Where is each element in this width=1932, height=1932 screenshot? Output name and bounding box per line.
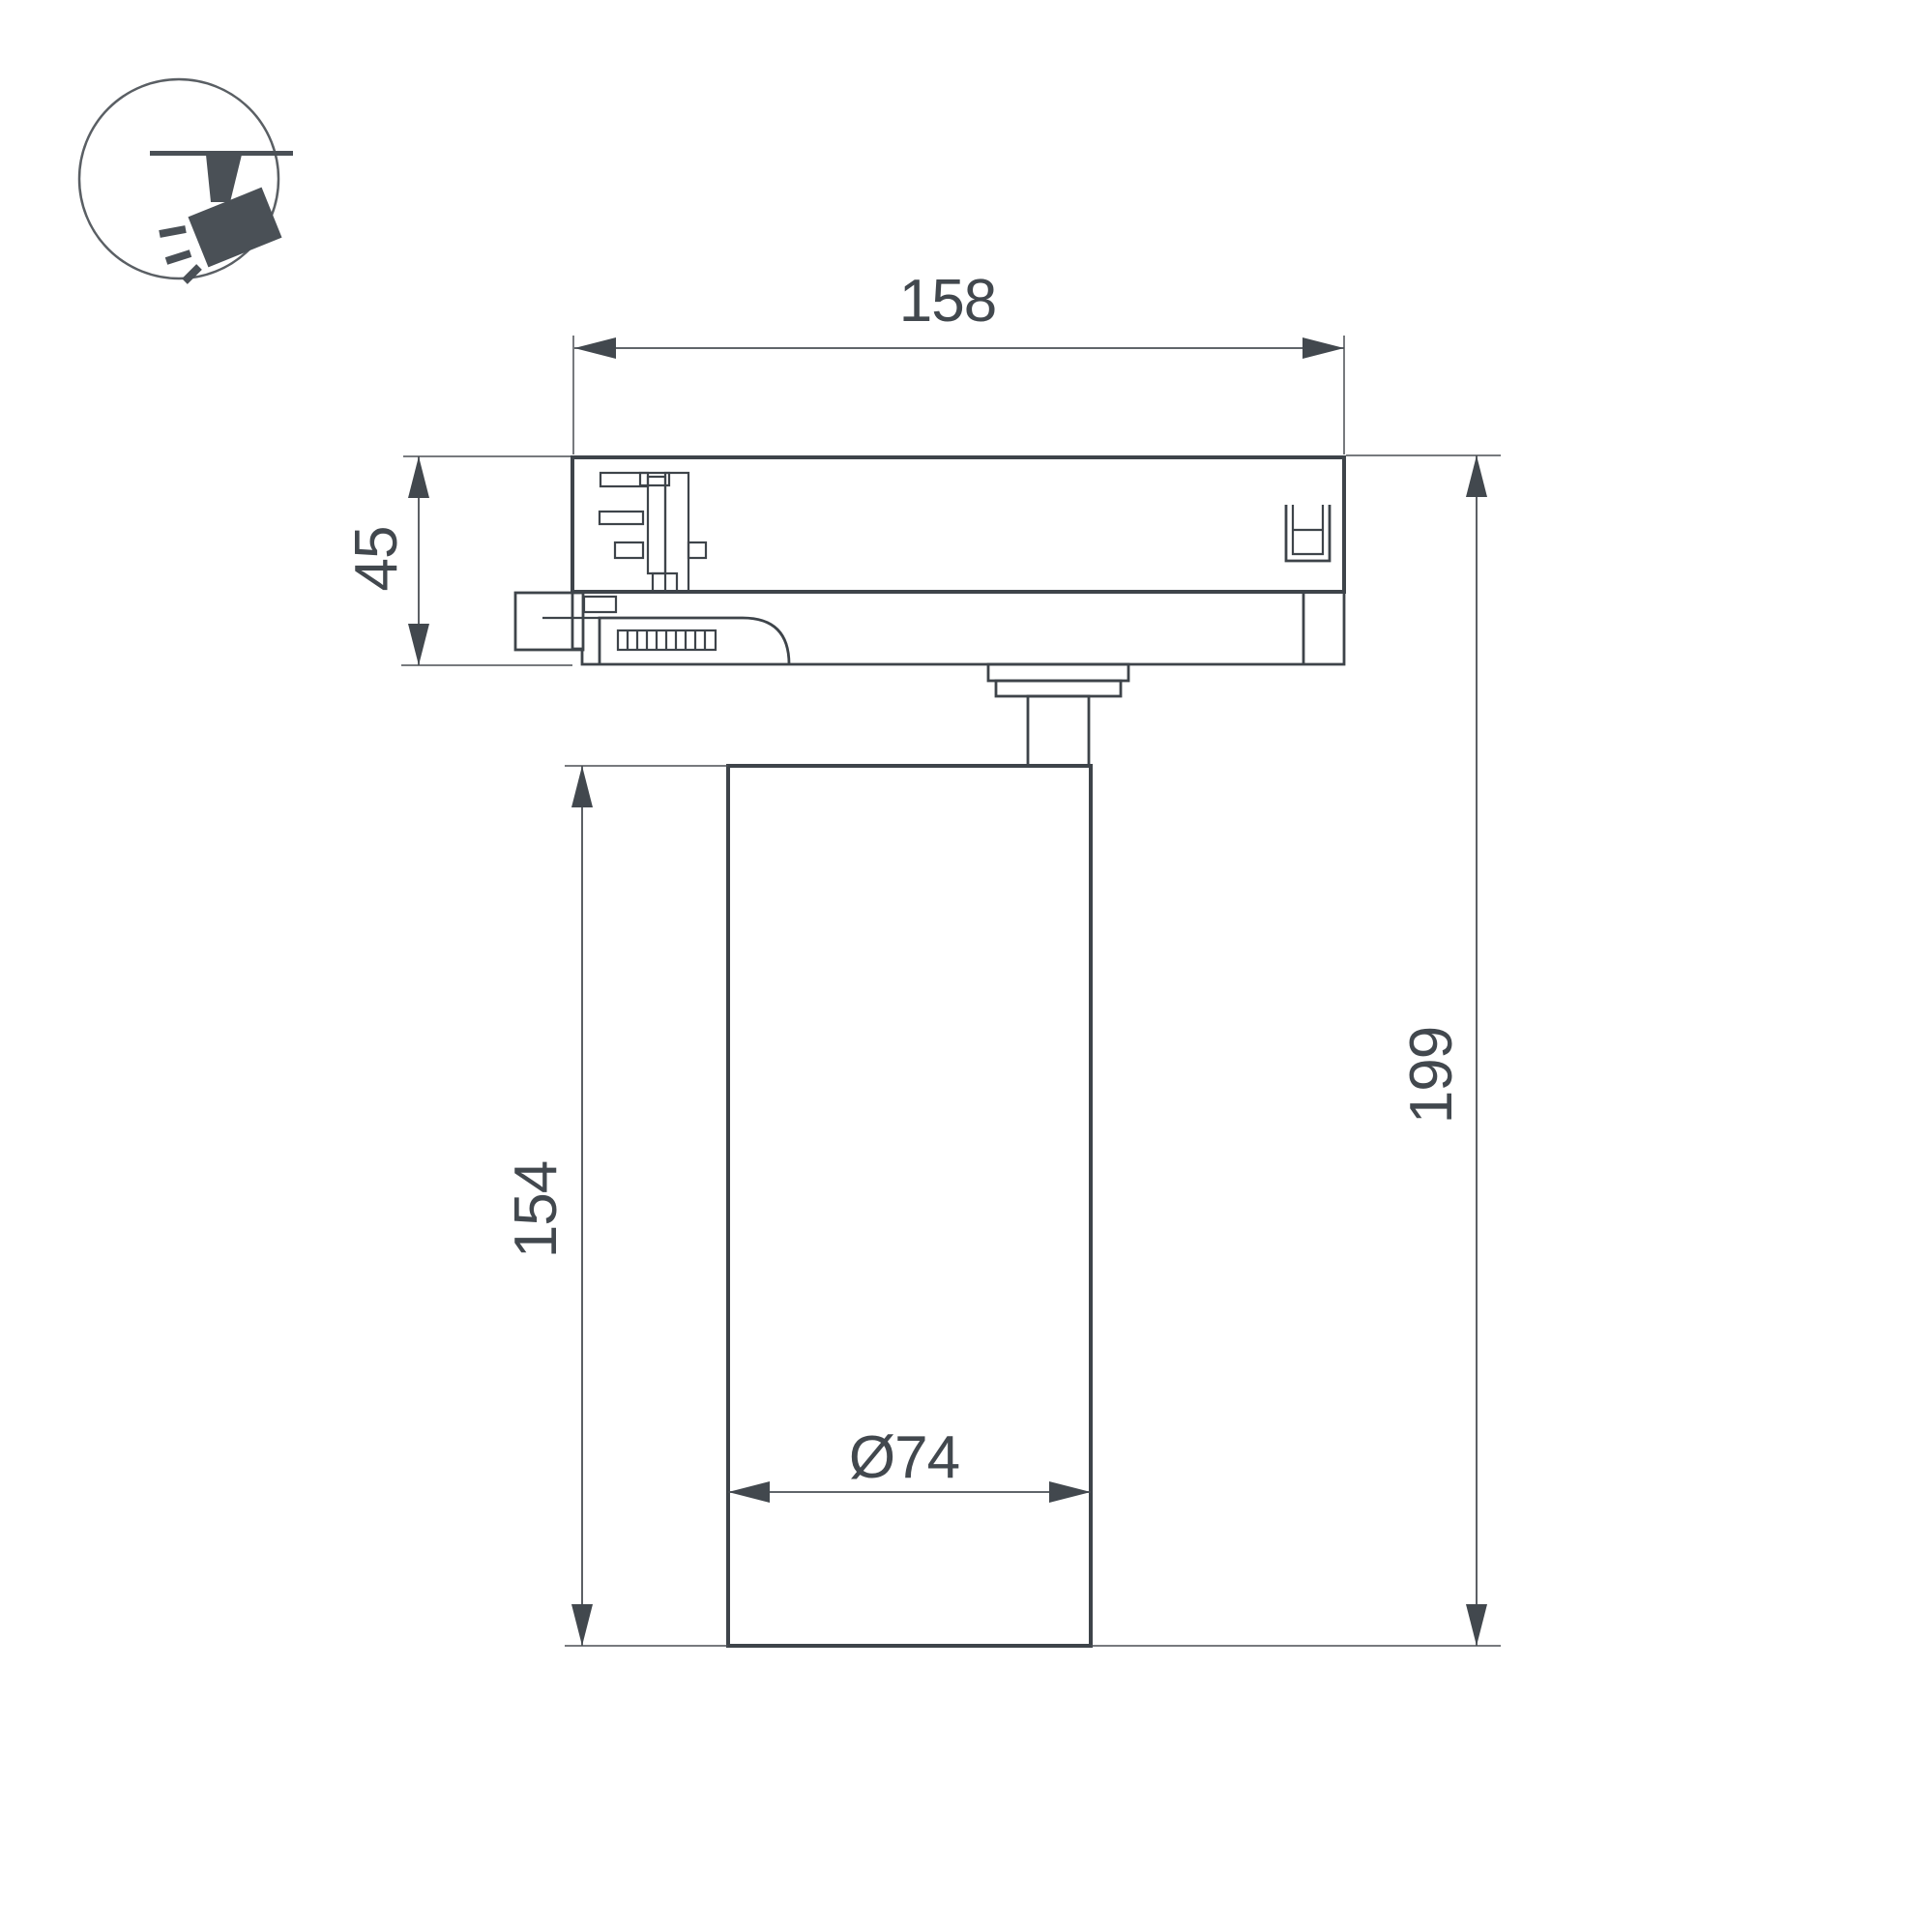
track-light-icon <box>79 79 293 281</box>
arrowhead <box>408 456 429 498</box>
extension-line <box>565 766 728 1646</box>
dim-adapter-height-label: 45 <box>343 527 410 592</box>
arrowhead <box>408 624 429 665</box>
contact-stem <box>648 477 665 573</box>
adjustment-lever <box>542 618 789 664</box>
arrowhead <box>1303 337 1344 359</box>
dim-adapter-height: 45 <box>343 456 572 665</box>
arrowhead <box>1466 455 1487 497</box>
dim-body-height: 154 <box>503 766 728 1646</box>
page: 158 45 154 199 <box>0 0 1932 1932</box>
dim-track-width-label: 158 <box>899 268 996 335</box>
arrowhead <box>1049 1481 1091 1503</box>
extension-line <box>573 336 1344 454</box>
extension-line <box>401 456 572 665</box>
dim-body-diameter-label: Ø74 <box>849 1424 959 1491</box>
dim-body-diameter: Ø74 <box>728 1424 1091 1503</box>
dim-total-height: 199 <box>1091 455 1501 1646</box>
technical-drawing-canvas: 158 45 154 199 <box>0 0 1932 1932</box>
arrowhead <box>574 337 616 359</box>
pivot-neck <box>1028 696 1089 766</box>
dim-track-width: 158 <box>573 268 1344 454</box>
arrowhead <box>1466 1604 1487 1646</box>
pivot-mount <box>988 664 1128 766</box>
track-adapter <box>515 457 1344 766</box>
arrowhead <box>728 1481 770 1503</box>
contact-prong <box>615 542 643 558</box>
dimension-annotations: 158 45 154 199 <box>343 268 1501 1646</box>
arrowhead <box>571 766 593 807</box>
track-clip <box>1286 505 1330 561</box>
power-contact-assembly <box>600 473 706 592</box>
contact-prong <box>600 512 643 524</box>
latch-notch <box>584 597 616 612</box>
lever-grip-ribs <box>628 630 705 650</box>
icon-light-ray <box>160 229 186 234</box>
contact-prong <box>688 542 706 558</box>
dim-body-height-label: 154 <box>503 1161 570 1258</box>
lamp-body-cylinder <box>728 766 1091 1646</box>
arrowhead <box>571 1604 593 1646</box>
dim-total-height-label: 199 <box>1398 1027 1465 1124</box>
pivot-step-upper <box>988 664 1128 681</box>
pivot-step-lower <box>996 681 1121 696</box>
adapter-lower-body <box>572 592 1344 664</box>
